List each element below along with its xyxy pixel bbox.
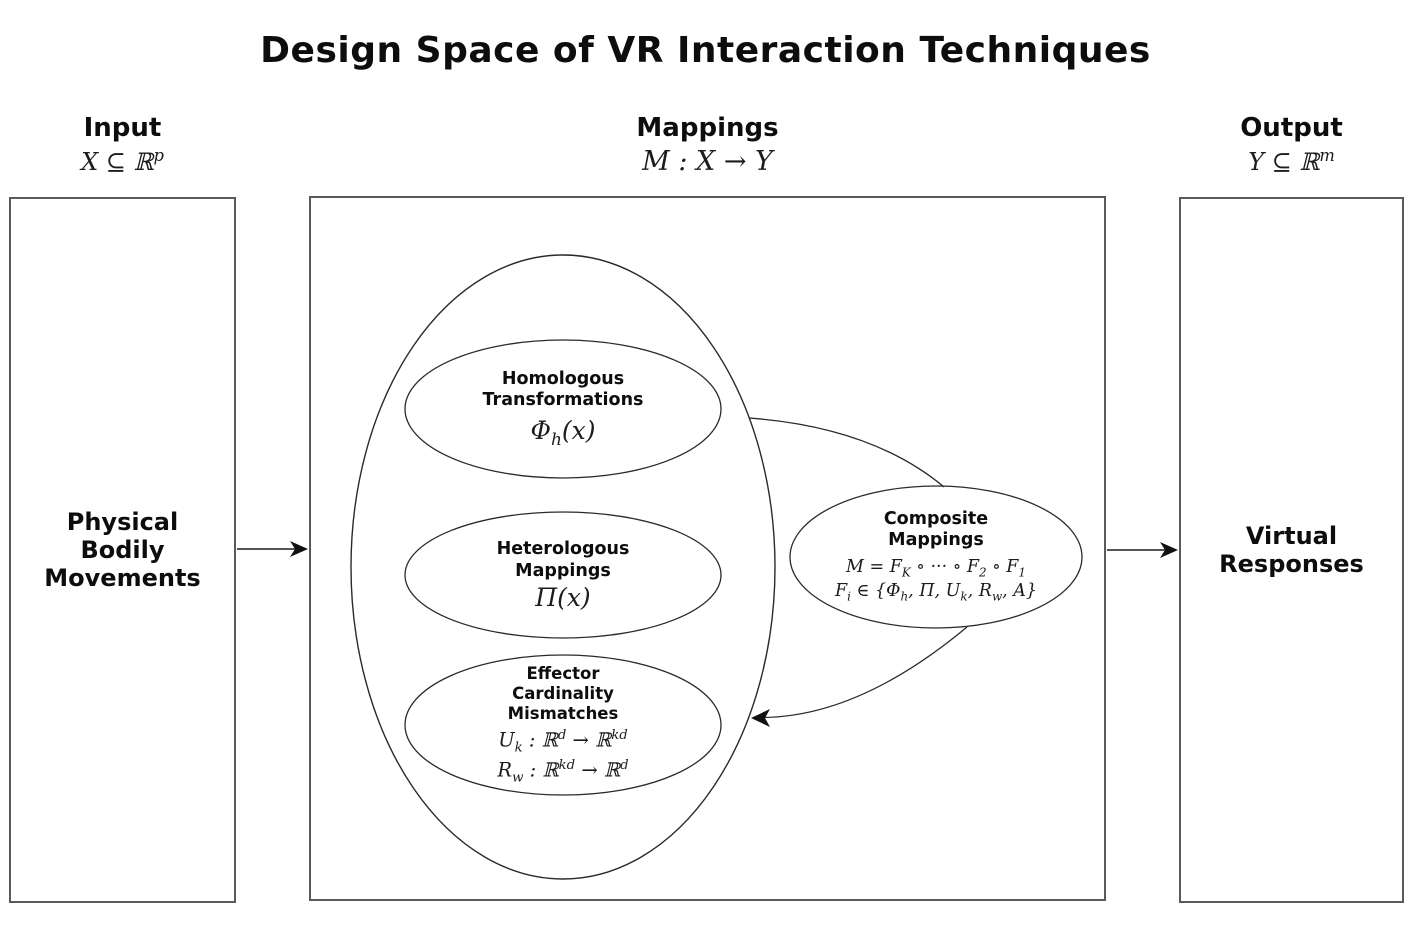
composite-loop-out-curve [749, 418, 944, 487]
output-domain-formula: Y ⊆ ℝm [1180, 146, 1403, 176]
output-label-line-2: Responses [1219, 550, 1364, 578]
effector-ellipse-content: Effector Cardinality Mismatches Uk : ℝd … [405, 656, 721, 795]
input-column-label: Input [10, 113, 235, 143]
composite-title-line-2: Mappings [888, 530, 984, 551]
output-label-line-1: Virtual [1246, 522, 1337, 550]
input-label-line-3: Movements [44, 564, 200, 592]
input-domain-formula: X ⊆ ℝp [10, 146, 235, 176]
effector-title-line-2: Cardinality [512, 684, 614, 704]
homologous-title-line-2: Transformations [483, 390, 644, 411]
composite-formula-1: M = FK ∘ ··· ∘ F2 ∘ F1 [846, 556, 1026, 581]
heterologous-formula: Π(x) [535, 583, 590, 612]
effector-title-line-1: Effector [527, 664, 600, 684]
effector-title-line-3: Mismatches [508, 704, 619, 724]
input-label-line-2: Bodily [80, 536, 164, 564]
input-column-header: Input X ⊆ ℝp [10, 113, 235, 176]
output-box-label: Virtual Responses [1180, 198, 1403, 902]
composite-formula-2: Fi ∈ {Φh, Π, Uk, Rw, A} [835, 580, 1037, 605]
mappings-domain-formula: M : X → Y [310, 146, 1105, 177]
page-title: Design Space of VR Interaction Technique… [0, 30, 1411, 71]
homologous-formula: Φh(x) [530, 416, 595, 450]
heterologous-title-line-2: Mappings [515, 561, 611, 582]
composite-ellipse-content: Composite Mappings M = FK ∘ ··· ∘ F2 ∘ F… [790, 487, 1082, 627]
output-column-header: Output Y ⊆ ℝm [1180, 113, 1403, 176]
heterologous-ellipse-content: Heterologous Mappings Π(x) [405, 513, 721, 638]
diagram-canvas: Design Space of VR Interaction Technique… [0, 0, 1411, 952]
heterologous-title-line-1: Heterologous [497, 539, 630, 560]
mappings-column-label: Mappings [310, 113, 1105, 143]
output-column-label: Output [1180, 113, 1403, 143]
homologous-ellipse-content: Homologous Transformations Φh(x) [405, 341, 721, 478]
composite-loop-return-curve [762, 627, 967, 718]
composite-title-line-1: Composite [884, 509, 988, 530]
effector-formula-2: Rw : ℝkd → ℝd [497, 757, 628, 787]
homologous-title-line-1: Homologous [502, 369, 624, 390]
input-label-line-1: Physical [67, 508, 178, 536]
effector-formula-1: Uk : ℝd → ℝkd [498, 727, 628, 757]
input-box-label: Physical Bodily Movements [10, 198, 235, 902]
mappings-column-header: Mappings M : X → Y [310, 113, 1105, 177]
